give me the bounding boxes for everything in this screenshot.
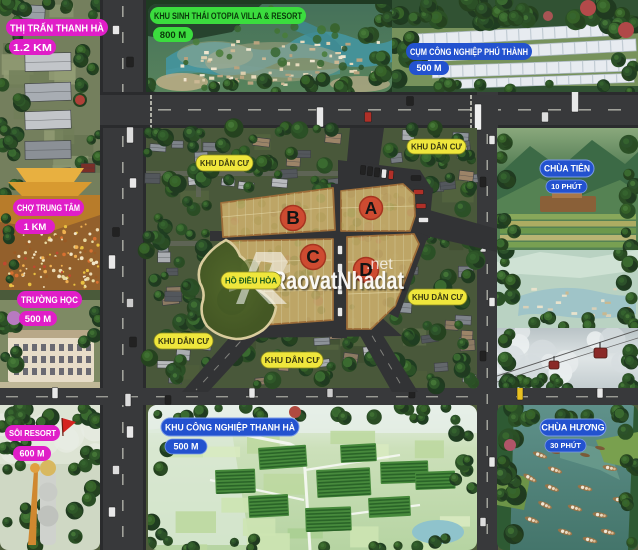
svg-text:1 KM: 1 KM <box>24 222 47 233</box>
svg-text:KHU DÂN CƯ: KHU DÂN CƯ <box>200 157 250 168</box>
svg-text:TRƯỜNG HỌC: TRƯỜNG HỌC <box>21 294 78 306</box>
svg-text:KHU DÂN CƯ: KHU DÂN CƯ <box>158 335 210 346</box>
svg-text:1.2 KM: 1.2 KM <box>13 42 52 54</box>
svg-text:500 M: 500 M <box>25 314 51 325</box>
svg-text:800 M: 800 M <box>160 30 186 41</box>
svg-text:B: B <box>286 207 300 228</box>
svg-text:SÔI RESORT: SÔI RESORT <box>9 427 57 438</box>
svg-text:KHU DÂN CƯ: KHU DÂN CƯ <box>412 291 464 302</box>
svg-text:KHU SINH THÁI OTOPIA VILLA & R: KHU SINH THÁI OTOPIA VILLA & RESORT <box>154 11 302 22</box>
svg-text:CỤM CÔNG NGHIỆP PHÚ THÀNH: CỤM CÔNG NGHIỆP PHÚ THÀNH <box>410 46 528 58</box>
svg-text:HỒ ĐIỀU HÒA: HỒ ĐIỀU HÒA <box>225 275 277 286</box>
svg-text:10 PHÚT: 10 PHÚT <box>551 182 582 191</box>
svg-text:30 PHÚT: 30 PHÚT <box>550 441 581 450</box>
svg-text:CHỢ TRUNG TÂM: CHỢ TRUNG TÂM <box>17 202 80 214</box>
svg-text:THỊ TRẤN THANH HÀ: THỊ TRẤN THANH HÀ <box>10 21 104 34</box>
svg-text:CHÙA HƯƠNG: CHÙA HƯƠNG <box>541 422 604 433</box>
svg-text:500 M: 500 M <box>416 63 441 73</box>
svg-text:500 M: 500 M <box>173 442 198 452</box>
svg-text:KHU CÔNG NGHIỆP THANH HÀ: KHU CÔNG NGHIỆP THANH HÀ <box>165 421 295 433</box>
svg-text:A: A <box>365 198 377 218</box>
svg-text:CHÙA TIÊN: CHÙA TIÊN <box>544 163 590 174</box>
svg-text:RaovatNhadat: RaovatNhadat <box>272 267 405 295</box>
svg-text:KHU DÂN CƯ: KHU DÂN CƯ <box>411 141 463 152</box>
svg-text:KHU DÂN CƯ: KHU DÂN CƯ <box>265 354 321 365</box>
svg-text:600 M: 600 M <box>19 449 44 459</box>
svg-text:C: C <box>306 246 320 267</box>
